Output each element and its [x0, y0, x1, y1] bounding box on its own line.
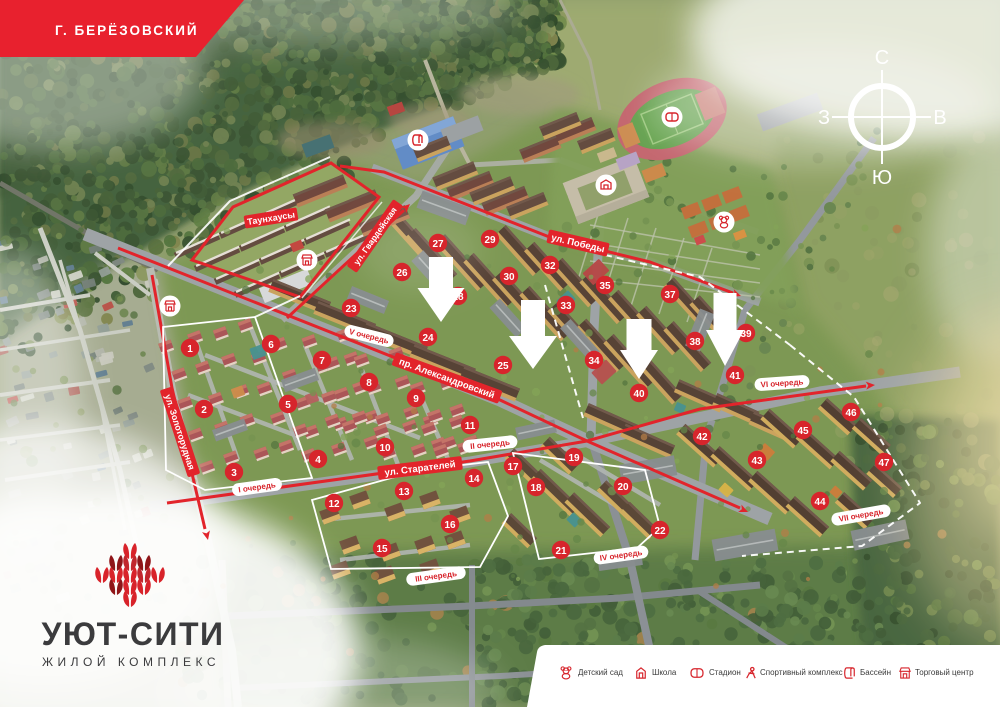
svg-text:29: 29: [484, 235, 496, 246]
svg-text:38: 38: [689, 337, 701, 348]
svg-text:8: 8: [366, 378, 372, 389]
svg-text:4: 4: [315, 455, 321, 466]
svg-text:10: 10: [379, 443, 391, 454]
svg-text:37: 37: [664, 290, 676, 301]
svg-text:22: 22: [654, 526, 666, 537]
svg-text:14: 14: [468, 474, 480, 485]
svg-text:19: 19: [568, 453, 580, 464]
svg-text:24: 24: [422, 333, 434, 344]
svg-text:13: 13: [398, 487, 410, 498]
svg-text:С: С: [875, 47, 889, 69]
svg-text:11: 11: [465, 421, 476, 432]
svg-text:17: 17: [507, 462, 519, 473]
svg-text:20: 20: [617, 482, 629, 493]
svg-text:43: 43: [751, 456, 763, 467]
svg-text:47: 47: [878, 458, 890, 469]
svg-text:Ю: Ю: [872, 167, 892, 189]
svg-text:41: 41: [729, 371, 741, 382]
svg-text:1: 1: [187, 344, 193, 355]
svg-text:27: 27: [432, 239, 444, 250]
svg-text:44: 44: [814, 497, 826, 508]
svg-text:В: В: [933, 107, 946, 129]
svg-text:32: 32: [544, 261, 556, 272]
svg-text:2: 2: [201, 405, 207, 416]
svg-text:21: 21: [555, 546, 567, 557]
svg-text:12: 12: [328, 499, 340, 510]
svg-text:25: 25: [497, 361, 509, 372]
svg-text:3: 3: [231, 468, 237, 479]
svg-text:34: 34: [588, 356, 600, 367]
svg-text:18: 18: [530, 483, 542, 494]
svg-text:40: 40: [633, 389, 645, 400]
svg-text:6: 6: [268, 340, 274, 351]
svg-text:26: 26: [396, 268, 408, 279]
svg-text:42: 42: [696, 432, 708, 443]
svg-text:5: 5: [285, 400, 291, 411]
svg-text:16: 16: [444, 520, 456, 531]
svg-text:7: 7: [319, 356, 325, 367]
svg-text:30: 30: [503, 272, 515, 283]
svg-text:З: З: [818, 107, 830, 129]
svg-text:15: 15: [376, 544, 388, 555]
svg-text:46: 46: [845, 408, 857, 419]
svg-text:23: 23: [345, 304, 357, 315]
svg-text:35: 35: [599, 281, 611, 292]
svg-text:9: 9: [413, 394, 419, 405]
svg-text:33: 33: [560, 301, 572, 312]
svg-text:45: 45: [797, 426, 809, 437]
